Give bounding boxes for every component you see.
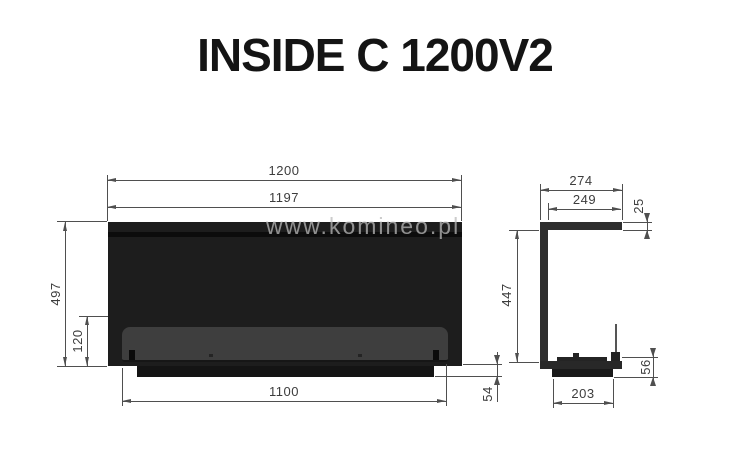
dim-label-1197: 1197 xyxy=(107,191,461,205)
side-pin xyxy=(615,324,617,352)
ext-line xyxy=(509,230,539,231)
dim-label-497: 497 xyxy=(49,272,63,316)
side-burner-top xyxy=(557,357,607,361)
dim-line-447 xyxy=(517,230,518,362)
dim-line-120 xyxy=(87,316,88,366)
side-burner-nub xyxy=(573,353,579,357)
front-glass-tab-right xyxy=(433,350,439,360)
front-burner-mark-left xyxy=(209,354,213,357)
dim-line-203 xyxy=(553,403,613,404)
side-top-plate xyxy=(540,222,622,230)
dim-line-1197 xyxy=(107,207,461,208)
dim-line-249 xyxy=(548,209,621,210)
front-base-plate xyxy=(137,366,434,377)
dim-label-120: 120 xyxy=(71,319,85,363)
dim-label-203: 203 xyxy=(553,387,613,401)
dim-label-249: 249 xyxy=(548,193,621,207)
dim-line-274 xyxy=(540,190,622,191)
dim-label-1200: 1200 xyxy=(107,164,461,178)
ext-line xyxy=(622,184,623,220)
side-base-plate xyxy=(552,369,613,377)
front-glass-strip xyxy=(122,327,448,362)
page-title: INSIDE C 1200V2 xyxy=(0,28,750,82)
dim-line-1200 xyxy=(107,180,461,181)
front-glass-tab-left xyxy=(129,350,135,360)
dim-label-1100: 1100 xyxy=(122,385,446,399)
dim-label-54: 54 xyxy=(481,372,495,416)
dim-label-25: 25 xyxy=(632,184,646,228)
dim-line-497 xyxy=(65,222,66,366)
ext-line xyxy=(79,316,108,317)
ext-line xyxy=(446,364,447,406)
side-bottom-plate xyxy=(540,361,622,369)
dim-label-274: 274 xyxy=(540,174,622,188)
side-back-leg xyxy=(540,222,548,369)
ext-line xyxy=(509,362,539,363)
technical-drawing: INSIDE C 1200V2 www.komineo.pl 1200 1197… xyxy=(0,0,750,459)
side-pin-base xyxy=(611,352,620,361)
watermark: www.komineo.pl xyxy=(266,213,460,240)
dim-line-1100 xyxy=(122,401,446,402)
ext-line xyxy=(57,366,107,367)
ext-line xyxy=(461,175,462,221)
dim-label-56: 56 xyxy=(639,345,653,389)
ext-line xyxy=(613,379,614,408)
arrowhead xyxy=(644,230,650,239)
dim-label-447: 447 xyxy=(500,273,514,317)
arrowhead xyxy=(494,355,500,364)
front-burner-mark-right xyxy=(358,354,362,357)
